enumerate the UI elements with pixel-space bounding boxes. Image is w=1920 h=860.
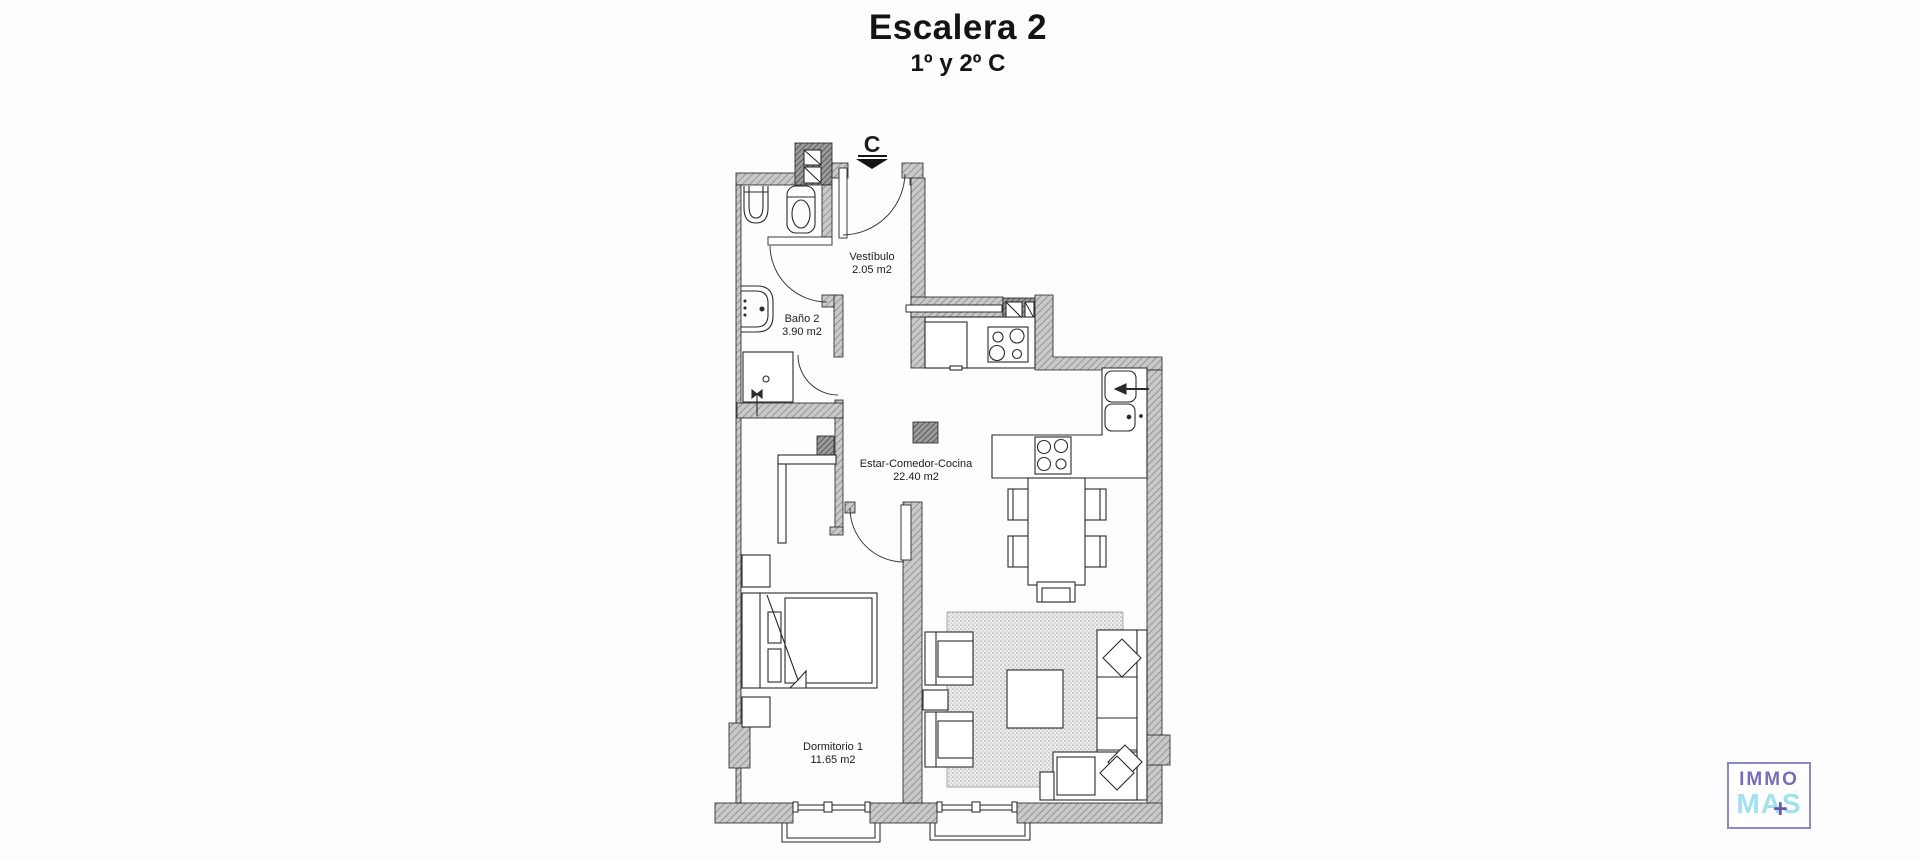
bedroom-window [782, 802, 880, 842]
room-label-vestibulo: Vestíbulo [849, 251, 894, 263]
wardrobe [778, 464, 786, 543]
pillow-icon [768, 649, 781, 682]
wall-bottom-left [715, 803, 793, 823]
room-area-estar: 22.40 m2 [893, 471, 939, 483]
page-title: Escalera 2 [758, 10, 1158, 47]
room-area-vestibulo: 2.05 m2 [852, 264, 892, 276]
balcony-outline [787, 823, 875, 838]
hob-icon [988, 327, 1028, 362]
room-area-bano2: 3.90 m2 [782, 326, 822, 338]
logo-text-immo: IMMO [1729, 770, 1809, 789]
dining-table [1028, 478, 1085, 585]
entrance-marker: C [856, 131, 888, 169]
toilet-icon [744, 186, 768, 223]
dining-chair [1008, 536, 1029, 567]
sofa-side-table [1040, 772, 1054, 800]
bath-door-leaf [768, 237, 832, 245]
bedroom-door-leaf [901, 505, 911, 560]
logo-plus-icon: + [1773, 797, 1788, 822]
bedroom-door-arc [850, 508, 904, 562]
wall-bath-right-mid [834, 295, 843, 357]
floor-plan: C Vestíbulo 2.05 m2 Baño 2 3.90 m2 Estar… [703, 125, 1173, 850]
fridge-handle [950, 366, 962, 370]
page-subtitle: 1º y 2º C [758, 50, 1158, 78]
wall-kitchen-corner [1035, 295, 1162, 370]
wall-top-left [736, 173, 797, 185]
nightstand [742, 555, 770, 587]
dining-chair [1037, 582, 1075, 602]
wall-bottom-middle [870, 803, 937, 823]
room-label-dormitorio1: Dormitorio 1 [803, 741, 863, 753]
wall-bedroom-top [737, 403, 843, 418]
entrance-letter: C [864, 131, 881, 157]
kitchen-beam [906, 305, 1002, 312]
side-table [923, 690, 948, 710]
room-label-bano2: Baño 2 [785, 313, 820, 325]
wall-foot [830, 527, 843, 535]
dining-set [1008, 478, 1106, 602]
bidet-icon [787, 186, 815, 233]
bed [742, 593, 877, 688]
dining-chair [1084, 489, 1106, 520]
balcony-outline [935, 823, 1025, 836]
nightstand [742, 697, 770, 727]
bathroom-fixtures [741, 186, 815, 416]
coffee-table [1007, 670, 1063, 728]
dining-chair [1084, 536, 1106, 567]
entrance-door-arc [843, 174, 905, 235]
bedroom-furniture [742, 455, 877, 727]
wall-left-pilaster [729, 723, 750, 768]
shower-door-arc [798, 355, 838, 395]
armchair [925, 712, 973, 767]
title-block: Escalera 2 1º y 2º C [758, 10, 1158, 78]
washbasin-icon [741, 286, 773, 332]
entrance-arrow-icon [856, 159, 888, 169]
balcony-outline [782, 823, 880, 842]
dining-chair [1008, 489, 1029, 520]
wall-bath-right-upper [822, 185, 832, 240]
wall-left [736, 185, 741, 803]
wall-vestibule-right [911, 178, 925, 368]
fridge-icon [925, 322, 967, 368]
logo-text-mas: MAS [1729, 790, 1809, 818]
column-bedroom [817, 436, 834, 456]
balcony-outline [930, 823, 1030, 840]
floorplan-page: Escalera 2 1º y 2º C [0, 0, 1920, 860]
hob2-icon [1035, 437, 1071, 474]
column-living [913, 422, 938, 443]
room-label-estar: Estar-Comedor-Cocina [860, 458, 973, 470]
wardrobe [778, 455, 836, 464]
wall-bottom-right [1017, 803, 1162, 823]
room-area-dormitorio1: 11.65 m2 [810, 754, 855, 766]
wall-bedroom-right-upper [835, 400, 843, 533]
armchair [925, 632, 973, 685]
immomas-logo: IMMO MAS + [1727, 762, 1811, 829]
living-window [930, 802, 1030, 840]
entrance-door-leaf [839, 168, 847, 238]
bath-door-arc [770, 246, 827, 302]
